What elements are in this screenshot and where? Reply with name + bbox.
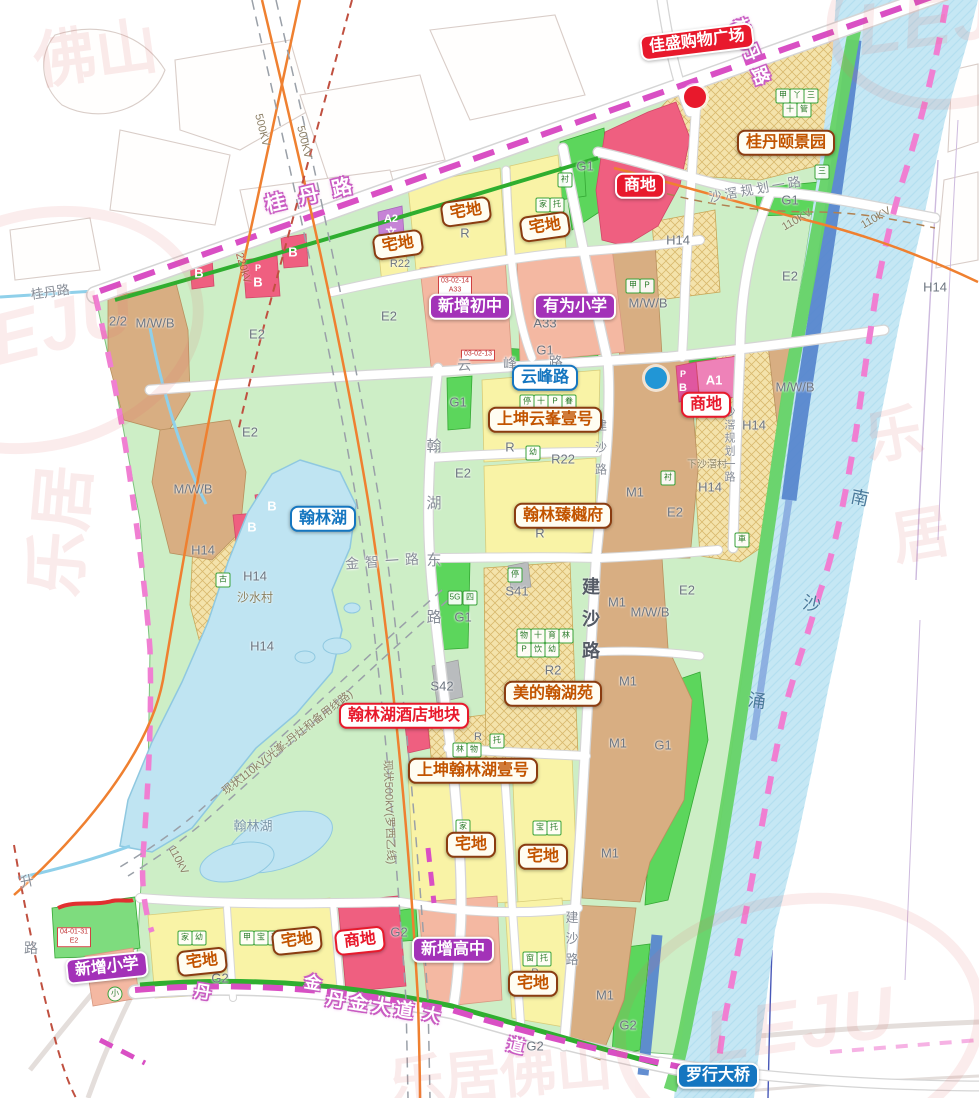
planning-map: LEJULEJULEJU佛山乐居乐居佛山乐居 G1G1G1G1G1G1G2G2G… (0, 0, 979, 1098)
base-map-svg (0, 0, 979, 1098)
